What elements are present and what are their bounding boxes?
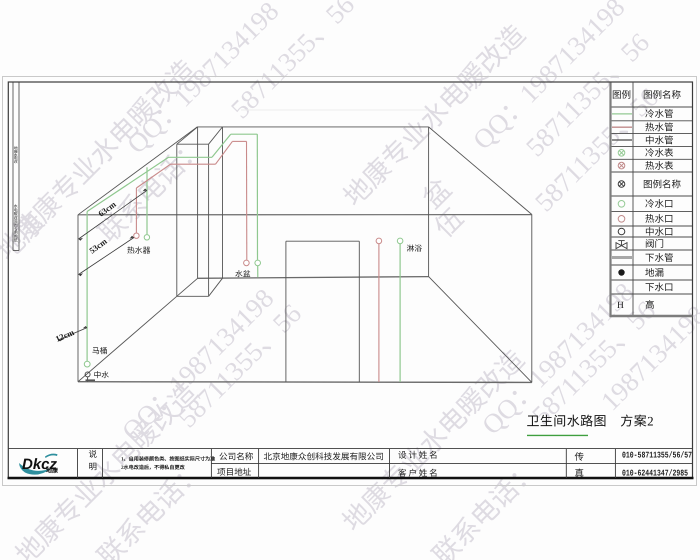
svg-text:2水电改造后，不得私自更改: 2水电改造后，不得私自更改 [121,464,186,471]
svg-text:客户姓名: 客户姓名 [398,468,440,478]
svg-text:纸: 纸 [14,238,18,243]
svg-text:明: 明 [89,462,98,472]
svg-text:地康: 地康 [46,467,59,475]
svg-text:水盆: 水盆 [235,270,251,279]
svg-text:010-62441347/2985: 010-62441347/2985 [622,468,688,478]
svg-text:马桶: 马桶 [92,347,108,356]
svg-text:010-58711355/56/57: 010-58711355/56/57 [622,450,692,460]
svg-text:卫生间水路图 方案2: 卫生间水路图 方案2 [527,414,655,429]
svg-text:12cm: 12cm [54,327,76,344]
svg-text:热水器: 热水器 [127,246,151,255]
svg-text:高: 高 [645,299,655,311]
svg-text:热水管: 热水管 [645,122,674,134]
svg-text:设计姓名: 设计姓名 [398,450,440,460]
svg-text:中水口: 中水口 [645,227,674,238]
svg-text:H: H [617,301,624,311]
svg-text:地漏: 地漏 [645,268,664,279]
svg-text:淋浴: 淋浴 [407,244,423,253]
svg-text:1、自用装修颜色类、按图纸实际尺寸为准: 1、自用装修颜色类、按图纸实际尺寸为准 [121,455,215,462]
svg-text:图例名称: 图例名称 [643,178,682,190]
svg-text:北京地康众创科技发展有限公司: 北京地康众创科技发展有限公司 [264,451,384,461]
svg-text:中水管: 中水管 [645,134,674,146]
svg-text:图例名称: 图例名称 [643,89,682,101]
svg-text:阀门: 阀门 [645,239,664,250]
svg-text:公司名称: 公司名称 [219,452,254,462]
svg-text:图例: 图例 [612,90,631,101]
svg-text:项目地址: 项目地址 [217,467,252,477]
svg-text:中水: 中水 [94,371,110,380]
svg-text:传: 传 [575,452,585,463]
svg-text:下水管: 下水管 [645,252,674,264]
svg-text:真: 真 [575,469,585,480]
svg-text:冷水口: 冷水口 [645,199,674,210]
svg-text:热水表: 热水表 [645,161,674,172]
svg-text:下水口: 下水口 [645,282,674,293]
svg-text:冷水表: 冷水表 [645,148,674,159]
svg-text:改: 改 [14,159,18,164]
svg-text:说: 说 [89,449,98,459]
svg-text:热水口: 热水口 [645,214,674,225]
svg-text:冷水管: 冷水管 [645,108,674,120]
svg-text:联系电话：: 联系电话： [427,455,544,560]
